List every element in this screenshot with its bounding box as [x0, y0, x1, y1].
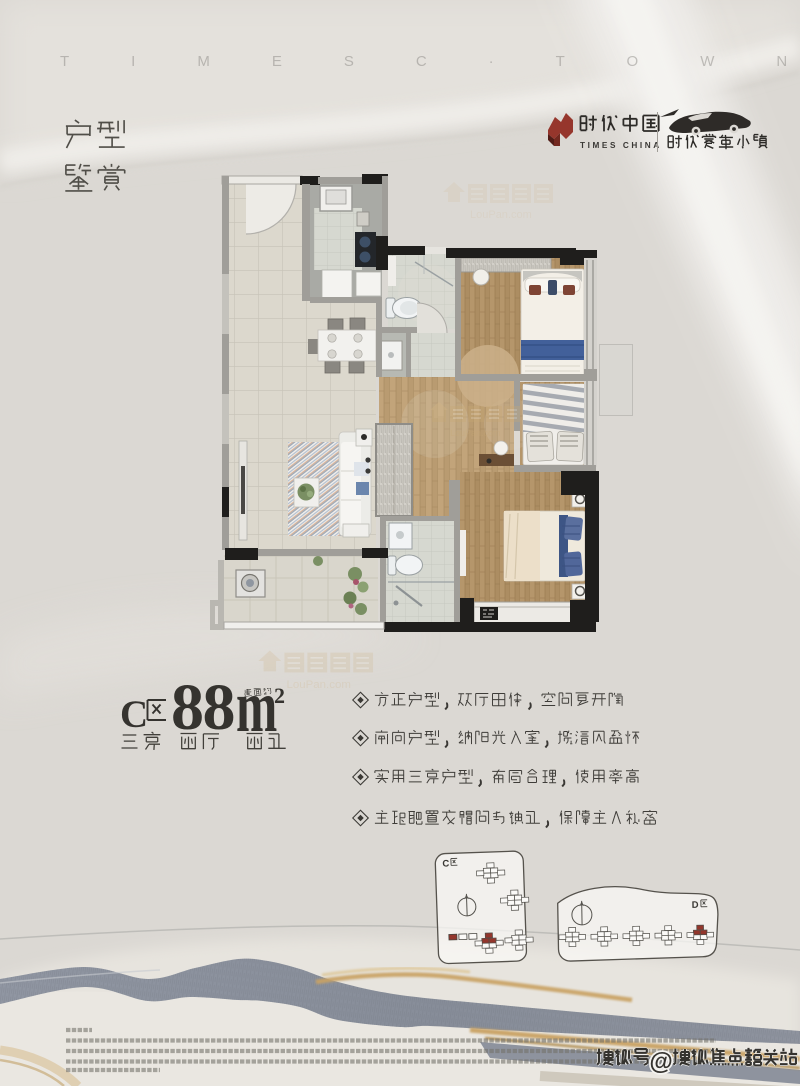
svg-text:C: C [442, 858, 449, 869]
svg-text:LouPan.com: LouPan.com [450, 428, 501, 438]
svg-text:TIMES CHINA: TIMES CHINA [580, 141, 662, 150]
svg-text:@: @ [649, 1049, 672, 1076]
svg-text:D: D [692, 900, 699, 911]
svg-text:LouPan.com: LouPan.com [470, 209, 532, 221]
